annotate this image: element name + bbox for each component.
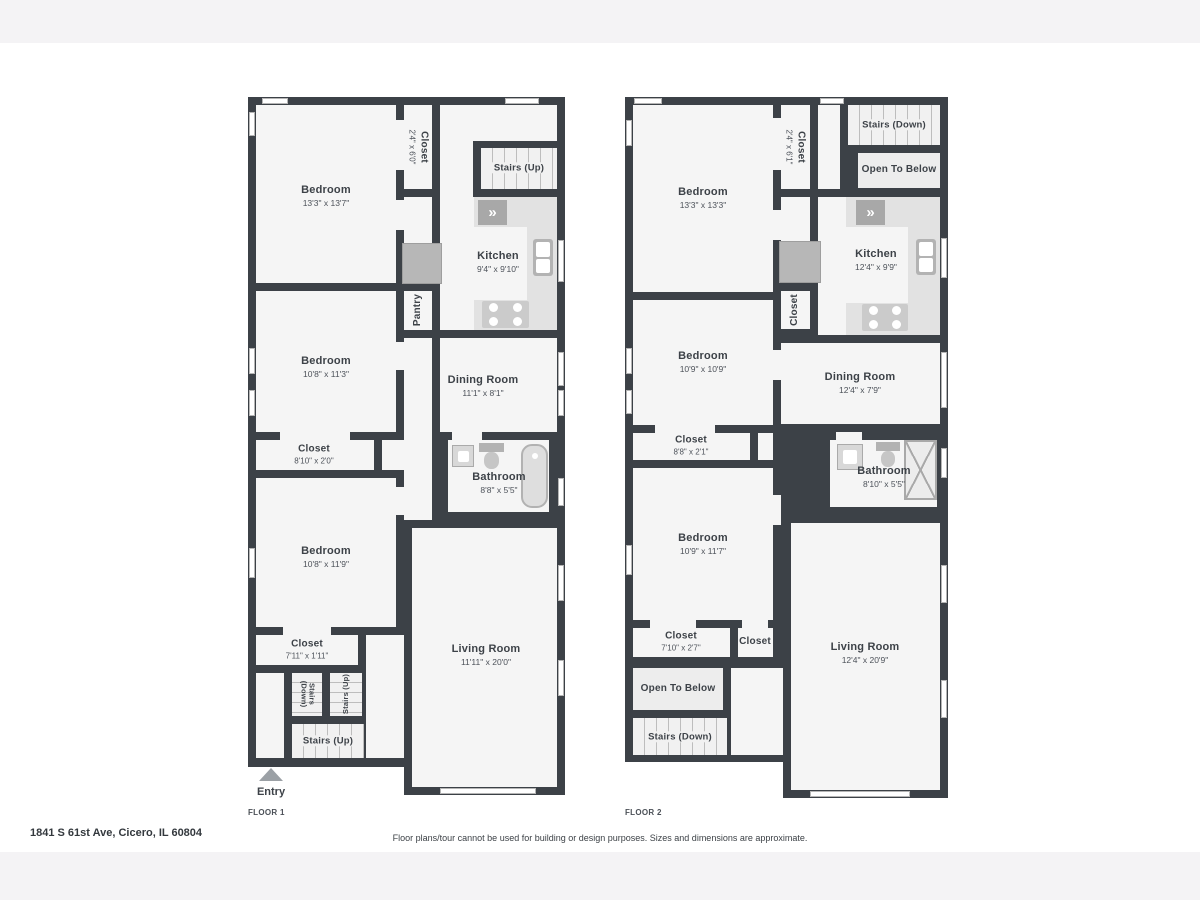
entry-arrow-icon: [259, 768, 283, 781]
appliance-chevrons-icon: »: [856, 200, 885, 225]
window-marker: [941, 448, 947, 478]
room-label: Bedroom13'3" x 13'3": [678, 186, 728, 210]
window-marker: [249, 348, 255, 374]
window-marker: [941, 238, 947, 278]
stove-icon: [862, 304, 908, 331]
room-label: Living Room11'11" x 20'0": [452, 643, 521, 667]
refrigerator-icon: [402, 243, 442, 284]
sink-icon: [452, 445, 474, 467]
window-marker: [262, 98, 288, 104]
door-opening: [396, 200, 404, 230]
door-opening: [650, 620, 696, 628]
door-opening: [742, 620, 768, 628]
window-marker: [505, 98, 539, 104]
room-label: Closet: [739, 636, 771, 648]
kitchen-sink-icon: [916, 239, 936, 275]
kitchen-sink-icon: [533, 239, 553, 276]
stair-landing: [440, 141, 473, 197]
room-label: Stairs (Up): [492, 162, 546, 173]
hallway: [404, 338, 432, 520]
window-marker: [558, 565, 564, 601]
window-marker: [820, 98, 844, 104]
hallway: [366, 635, 404, 758]
bottom-band: [0, 852, 1200, 900]
door-opening: [283, 627, 331, 635]
door-opening: [396, 342, 404, 370]
toilet-icon: [876, 442, 900, 451]
room-label: Stairs (Down): [860, 119, 928, 130]
floor1-tag: FLOOR 1: [248, 808, 285, 817]
room-label: Closet7'11" x 1'11": [286, 639, 329, 662]
toilet-icon: [479, 443, 504, 452]
room-label: Stairs (Down): [646, 731, 714, 742]
door-opening: [773, 210, 781, 240]
hallway: [758, 433, 773, 460]
room-label: Open To Below: [862, 164, 937, 176]
room-label: Closet2'4" x 6'1": [784, 130, 807, 165]
window-marker: [941, 352, 947, 408]
toilet-icon: [484, 452, 499, 469]
window-marker: [626, 545, 632, 575]
room-label: Bedroom10'9" x 10'9": [678, 350, 728, 374]
floor2-tag: FLOOR 2: [625, 808, 662, 817]
floor-plan-page: { "colors": {"wall":"#3c4147","room":"#f…: [0, 0, 1200, 900]
room-label: Open To Below: [641, 683, 716, 695]
refrigerator-icon: [779, 241, 821, 283]
window-marker: [558, 478, 564, 506]
door-opening: [396, 120, 404, 170]
room-label: Bedroom10'8" x 11'9": [301, 545, 351, 569]
window-marker: [249, 548, 255, 578]
entry-label: Entry: [257, 786, 285, 798]
room-label: Bedroom13'3" x 13'7": [301, 184, 351, 208]
entry-hall: [256, 673, 284, 758]
window-marker: [558, 352, 564, 386]
room-label: Bathroom8'8" x 5'5": [472, 471, 526, 495]
door-opening: [836, 432, 862, 440]
window-marker: [249, 112, 255, 136]
window-marker: [440, 788, 536, 794]
stove-icon: [482, 301, 529, 328]
window-marker: [558, 240, 564, 282]
door-opening: [396, 487, 404, 515]
door-opening: [655, 425, 715, 433]
hallway: [731, 668, 783, 755]
top-band: [0, 0, 1200, 43]
window-marker: [941, 565, 947, 603]
room-label: Closet7'10" x 2'7": [661, 631, 700, 654]
room-label: Bedroom10'9" x 11'7": [678, 532, 728, 556]
room-label: Pantry: [412, 294, 424, 326]
room-label: Kitchen12'4" x 9'9": [855, 248, 897, 272]
room-label: Closet8'10" x 2'0": [294, 444, 333, 467]
room-label: Closet: [789, 294, 801, 326]
door-opening: [773, 350, 781, 380]
door-opening: [773, 495, 781, 525]
stair-landing: [818, 105, 840, 189]
window-marker: [810, 791, 910, 797]
door-opening: [280, 432, 350, 440]
hallway: [382, 440, 404, 470]
room-label: Stairs (Up): [342, 673, 350, 715]
door-opening: [452, 432, 482, 440]
room-label: Dining Room11'1" x 8'1": [448, 374, 519, 398]
window-marker: [558, 660, 564, 696]
window-marker: [626, 120, 632, 146]
room-label: Bathroom8'10" x 5'5": [857, 465, 911, 489]
room-label: Dining Room12'4" x 7'9": [825, 371, 896, 395]
window-marker: [558, 390, 564, 416]
stair-landing: [440, 105, 557, 141]
door-opening: [773, 118, 781, 170]
room-label: Bedroom10'8" x 11'3": [301, 355, 351, 379]
room-label: Kitchen9'4" x 9'10": [477, 250, 519, 274]
window-marker: [249, 390, 255, 416]
room-label: Closet8'8" x 2'1": [674, 435, 709, 458]
disclaimer-text: Floor plans/tour cannot be used for buil…: [0, 833, 1200, 843]
room-label: Stairs (Down): [299, 673, 316, 715]
room-label: Stairs (Up): [301, 735, 355, 746]
room-label: Living Room12'4" x 20'9": [831, 641, 900, 665]
appliance-chevrons-icon: »: [478, 200, 507, 225]
window-marker: [626, 348, 632, 374]
window-marker: [634, 98, 662, 104]
room-label: Closet2'4" x 6'0": [407, 130, 430, 165]
window-marker: [626, 390, 632, 414]
window-marker: [941, 680, 947, 718]
